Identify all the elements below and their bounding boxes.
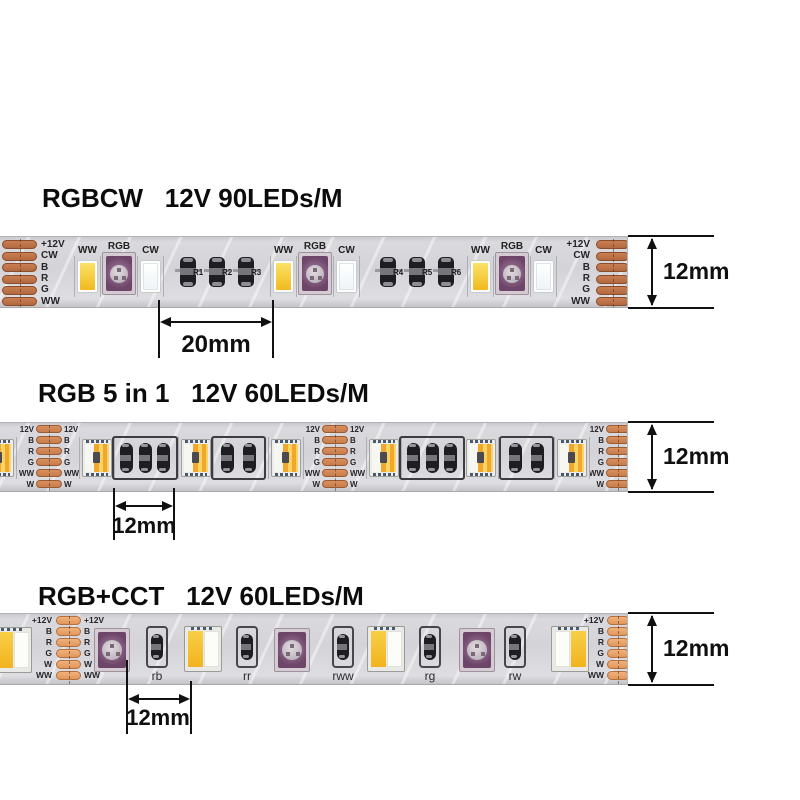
- width-dimension-label: 12mm: [663, 443, 729, 470]
- led-pins: [1, 628, 25, 631]
- rgbww-5in1-led: [82, 439, 112, 477]
- led-pins: [373, 440, 395, 443]
- section-title-rgbcct: RGB+CCT 12V 60LEDs/M: [38, 581, 364, 612]
- extension-line: [628, 421, 714, 423]
- resistor-cap: [153, 655, 159, 658]
- led-strip-product-diagram: RGBCW 12V 90LEDs/M +12VCWBRGWW+12VCWBRGW…: [0, 0, 800, 800]
- resistor-band: [120, 455, 131, 461]
- pad-label: B: [28, 627, 52, 637]
- resistor-cap: [159, 444, 166, 447]
- led-chip: [192, 452, 199, 463]
- rgb-chip: [122, 276, 126, 280]
- solder-pad-line: [333, 256, 334, 297]
- led-pins: [470, 440, 492, 443]
- solder-pad-line: [268, 437, 269, 479]
- pad-cut-line: [20, 239, 21, 307]
- led-pins: [470, 473, 492, 476]
- solder-pad-line: [589, 437, 590, 479]
- resistor-band: [509, 644, 519, 650]
- resistor-cap: [428, 444, 435, 447]
- resistor-label: R2: [222, 268, 232, 277]
- resistor-cap: [428, 468, 435, 471]
- solder-pad-line: [467, 256, 468, 297]
- resistor-cap: [383, 258, 393, 262]
- pad-label: G: [574, 649, 604, 659]
- resistor-cap: [426, 635, 432, 638]
- pad-label: G: [28, 649, 52, 659]
- rgb-chip: [515, 276, 519, 280]
- rgb-chip: [296, 652, 300, 656]
- ww-led: [470, 260, 491, 293]
- arrowhead-down-icon: [647, 479, 657, 490]
- solder-pad-line: [366, 437, 367, 479]
- resistor: [120, 443, 133, 473]
- pad-label: WW: [28, 671, 52, 681]
- rgb-chip: [475, 644, 479, 648]
- width-dimension-label: 12mm: [663, 635, 729, 662]
- resistor: [139, 443, 152, 473]
- pad-label: G: [16, 458, 34, 467]
- solder-pad-line: [178, 437, 179, 479]
- pad-cut-line: [335, 425, 336, 491]
- rgb-led: [298, 252, 332, 295]
- resistor-group-box: [399, 436, 465, 480]
- resistor-band: [139, 455, 150, 461]
- pad-label: +12V: [84, 616, 108, 626]
- solder-pad-line: [74, 256, 75, 297]
- resistor-cap: [441, 282, 451, 286]
- arrowhead-up-icon: [647, 424, 657, 435]
- resistor-cap: [141, 444, 148, 447]
- resistor-cap: [159, 468, 166, 471]
- resistor: [426, 443, 439, 473]
- resistor-band: [151, 644, 161, 650]
- resistor-group-box: [112, 436, 178, 480]
- resistor-cap: [511, 444, 518, 447]
- solder-pad-line: [100, 256, 101, 297]
- resistor: [509, 634, 521, 660]
- rgbww-5in1-led: [466, 439, 496, 477]
- rgb-chip: [117, 268, 121, 272]
- resistor-cap: [441, 258, 451, 262]
- copper-pad: [606, 447, 628, 455]
- resistor-cap: [446, 468, 453, 471]
- led-strip-rgbcw: +12VCWBRGWW+12VCWBRGWWWWRGBCWWWRGBCWWWRG…: [0, 236, 628, 308]
- extension-line: [628, 235, 714, 237]
- solder-pad-line: [296, 256, 297, 297]
- pad-label: B: [41, 262, 71, 273]
- pad-cut-line: [618, 616, 619, 684]
- rgb-led-dome: [306, 265, 324, 283]
- rgb-chip: [116, 652, 120, 656]
- extension-line: [628, 491, 714, 493]
- pad-label: WW: [41, 296, 71, 307]
- led-chip: [477, 452, 484, 463]
- solder-pad-line: [530, 256, 531, 297]
- resistor-group-box: [211, 436, 266, 480]
- rgb-led: [274, 628, 310, 672]
- solder-pad-line: [556, 256, 557, 297]
- pad-label: 12V: [64, 425, 82, 434]
- led-pins: [191, 627, 215, 630]
- resistor: [337, 634, 349, 660]
- resistor-cap: [183, 258, 193, 262]
- led-pins: [275, 473, 297, 476]
- resistor-band: [509, 455, 520, 461]
- pad-label: WW: [538, 296, 590, 307]
- rgb-led-dome: [467, 640, 487, 660]
- rgb-chip: [507, 276, 511, 280]
- arrowhead-left-icon: [128, 694, 139, 704]
- pad-label: WW: [16, 469, 34, 478]
- arrow-line: [163, 321, 269, 323]
- resistor-cap: [409, 444, 416, 447]
- arrowhead-up-icon: [647, 238, 657, 249]
- solder-pad-line: [554, 437, 555, 479]
- led-pins: [86, 473, 108, 476]
- resistor-cap: [383, 282, 393, 286]
- resistor-cap: [141, 468, 148, 471]
- resistor-cap: [412, 282, 422, 286]
- pad-label: R: [302, 447, 320, 456]
- led-pins: [185, 440, 207, 443]
- resistor-cap: [409, 468, 416, 471]
- copper-pad: [606, 458, 628, 466]
- resistor-band: [444, 455, 455, 461]
- pad-label: W: [576, 480, 604, 489]
- resistor-cap: [223, 468, 230, 471]
- ww-led: [273, 260, 294, 293]
- rgb-chip: [510, 268, 514, 272]
- rgb-led: [102, 252, 136, 295]
- resistor: [509, 443, 522, 473]
- section-title-rgb5in1: RGB 5 in 1 12V 60LEDs/M: [38, 378, 369, 409]
- ww-led-emitter: [80, 263, 95, 290]
- rgb-led-dome: [102, 640, 122, 660]
- resistor-group-box: [499, 436, 554, 480]
- resistor-label: R1: [193, 268, 203, 277]
- rgb-chip: [310, 276, 314, 280]
- rgb-chip: [110, 644, 114, 648]
- led-label: CW: [140, 245, 161, 256]
- cw-led-emitter: [339, 263, 354, 290]
- extension-line: [628, 612, 714, 614]
- resistor-band: [337, 644, 347, 650]
- resistor: [531, 443, 544, 473]
- resistor: [151, 634, 163, 660]
- cw-led: [140, 260, 161, 293]
- pad-label: W: [302, 480, 320, 489]
- resistor-label: R4: [393, 268, 403, 277]
- led-label: RGB: [495, 241, 529, 252]
- resistor-cap: [212, 282, 222, 286]
- pad-label: CW: [41, 250, 71, 261]
- resistor-outline-box: [332, 626, 354, 668]
- resistor-band: [241, 644, 251, 650]
- led-pins: [374, 627, 398, 630]
- resistor: [407, 443, 420, 473]
- resistor-cap: [153, 635, 159, 638]
- pad-label: R: [28, 638, 52, 648]
- solder-pad-line: [303, 437, 304, 479]
- resistor-cap: [245, 444, 252, 447]
- rgb-led-dome: [110, 265, 128, 283]
- resistor-cap: [426, 655, 432, 658]
- ww-led-emitter: [473, 263, 488, 290]
- width-dimension-label: 12mm: [663, 258, 729, 285]
- pad-cut-line: [69, 616, 70, 684]
- cct-half-white: [555, 631, 570, 667]
- resistor-band: [407, 455, 418, 461]
- solder-pad-line: [493, 256, 494, 297]
- led-pins: [561, 473, 583, 476]
- pad-label: 12V: [302, 425, 320, 434]
- resistor-cap: [241, 282, 251, 286]
- pad-cut-line: [618, 425, 619, 491]
- pad-label: 12V: [350, 425, 368, 434]
- section-title-rgbcw: RGBCW 12V 90LEDs/M: [42, 183, 343, 214]
- pad-label: WW: [574, 671, 604, 681]
- led-pins: [185, 473, 207, 476]
- resistor-cap: [339, 635, 345, 638]
- resistor-cap: [183, 282, 193, 286]
- resistor-outline-box: [419, 626, 441, 668]
- pad-label: W: [574, 660, 604, 670]
- rgb-led: [495, 252, 529, 295]
- pad-label: W: [64, 480, 82, 489]
- resistor-band: [243, 455, 254, 461]
- solder-pad-line: [79, 437, 80, 479]
- cct-half-amber: [0, 632, 13, 668]
- resistor-outline-box: [236, 626, 258, 668]
- cct-half-amber: [371, 631, 386, 667]
- rgb-chip: [481, 652, 485, 656]
- solder-pad-line: [270, 256, 271, 297]
- arrowhead-left-icon: [115, 501, 126, 511]
- rgb-chip: [290, 644, 294, 648]
- pitch-dimension-label: 12mm: [111, 705, 205, 731]
- arrowhead-down-icon: [647, 295, 657, 306]
- rgb-chip: [318, 276, 322, 280]
- rgbww-5in1-led: [271, 439, 301, 477]
- rgbww-5in1-led: [181, 439, 211, 477]
- pad-label: B: [574, 627, 604, 637]
- resistor-cap: [412, 258, 422, 262]
- resistor-outline-box: [146, 626, 168, 668]
- resistor-label: R3: [251, 268, 261, 277]
- led-pins: [275, 440, 297, 443]
- ww-led: [77, 260, 98, 293]
- cct-half-amber: [188, 631, 203, 667]
- led-pins: [0, 473, 10, 476]
- pad-label: R: [41, 273, 71, 284]
- resistor: [157, 443, 170, 473]
- resistor-cap: [122, 444, 129, 447]
- resistor: [243, 443, 256, 473]
- led-chip: [568, 452, 575, 463]
- pad-label: W: [16, 480, 34, 489]
- cct-half-white: [14, 632, 29, 668]
- resistor-cap: [533, 444, 540, 447]
- rgb-chip: [313, 268, 317, 272]
- rgbww-5in1-led: [369, 439, 399, 477]
- pad-label: +12V: [574, 616, 604, 626]
- resistor-cap: [241, 258, 251, 262]
- cw-led-emitter: [143, 263, 158, 290]
- resistor-label: rww: [324, 669, 362, 683]
- cw-led-emitter: [536, 263, 551, 290]
- resistor-cap: [511, 468, 518, 471]
- resistor-cap: [122, 468, 129, 471]
- led-strip-rgb5in1: 12VBRGWWW12VBRGWWW12VBRGWWW12VBRGWWW12VB…: [0, 422, 628, 492]
- rgb-led-dome: [503, 265, 521, 283]
- pad-label: 12V: [16, 425, 34, 434]
- resistor-label: rg: [411, 669, 449, 683]
- rgb-led: [94, 628, 130, 672]
- pad-label: +12V: [28, 616, 52, 626]
- cw-led: [533, 260, 554, 293]
- solder-pad-line: [137, 256, 138, 297]
- resistor-label: rw: [496, 669, 534, 683]
- pitch-dimension-label: 20mm: [158, 331, 274, 359]
- led-label: WW: [75, 245, 100, 256]
- led-label: WW: [271, 245, 296, 256]
- led-chip: [282, 452, 289, 463]
- led-pins: [86, 440, 108, 443]
- copper-pad: [606, 425, 628, 433]
- ww-led-emitter: [276, 263, 291, 290]
- resistor-label: R6: [451, 268, 461, 277]
- resistor-band: [157, 455, 168, 461]
- resistor-band: [531, 455, 542, 461]
- led-label: WW: [468, 245, 493, 256]
- copper-pad: [606, 436, 628, 444]
- pad-cut-line: [613, 239, 614, 307]
- led-label: CW: [336, 245, 357, 256]
- resistor-band: [424, 644, 434, 650]
- resistor-cap: [446, 444, 453, 447]
- arrowhead-right-icon: [261, 317, 272, 327]
- cct-half-white: [387, 631, 402, 667]
- resistor-label: R5: [422, 268, 432, 277]
- led-label: CW: [533, 245, 554, 256]
- led-pins: [0, 440, 10, 443]
- arrowhead-right-icon: [179, 694, 190, 704]
- rgb-chip: [286, 652, 290, 656]
- pad-label: G: [41, 284, 71, 295]
- copper-pad: [606, 480, 628, 488]
- cw-led: [336, 260, 357, 293]
- resistor: [424, 634, 436, 660]
- rgbww-5in1-led: [0, 439, 14, 477]
- pad-cut-line: [49, 425, 50, 491]
- pad-label: W: [350, 480, 368, 489]
- pad-label: R: [16, 447, 34, 456]
- led-chip: [0, 452, 2, 463]
- resistor-cap: [243, 635, 249, 638]
- arrowhead-down-icon: [647, 672, 657, 683]
- rgbww-5in1-led: [557, 439, 587, 477]
- resistor-band: [426, 455, 437, 461]
- rgb-chip: [471, 652, 475, 656]
- arrowhead-left-icon: [160, 317, 171, 327]
- resistor-cap: [533, 468, 540, 471]
- pad-label: 12V: [576, 425, 604, 434]
- resistor: [444, 443, 457, 473]
- rgb-chip: [106, 652, 110, 656]
- led-label: RGB: [298, 241, 332, 252]
- led-chip: [380, 452, 387, 463]
- pad-label: B: [16, 436, 34, 445]
- pad-label: B: [302, 436, 320, 445]
- arrowhead-up-icon: [647, 615, 657, 626]
- rgb-chip: [114, 276, 118, 280]
- resistor-cap: [245, 468, 252, 471]
- cct-led: [184, 626, 222, 672]
- led-chip: [93, 452, 100, 463]
- pad-label: +12V: [41, 239, 71, 250]
- resistor-cap: [511, 655, 517, 658]
- resistor-label: rr: [228, 669, 266, 683]
- pad-label: W: [28, 660, 52, 670]
- resistor-cap: [243, 655, 249, 658]
- pitch-dimension-label: 12mm: [98, 513, 190, 539]
- rgb-led-dome: [282, 640, 302, 660]
- pad-label: R: [574, 638, 604, 648]
- pad-label: G: [302, 458, 320, 467]
- extension-line: [628, 307, 714, 309]
- cct-half-white: [204, 631, 219, 667]
- rgb-led: [459, 628, 495, 672]
- copper-pad: [606, 469, 628, 477]
- solder-pad-line: [359, 256, 360, 297]
- arrowhead-right-icon: [162, 501, 173, 511]
- resistor-outline-box: [504, 626, 526, 668]
- led-pins: [373, 473, 395, 476]
- solder-pad-line: [163, 256, 164, 297]
- pad-label: WW: [302, 469, 320, 478]
- pad-label: WW: [84, 671, 108, 681]
- extension-line: [628, 684, 714, 686]
- resistor-cap: [212, 258, 222, 262]
- led-pins: [561, 440, 583, 443]
- resistor-cap: [511, 635, 517, 638]
- resistor-label: rb: [138, 669, 176, 683]
- resistor-cap: [223, 444, 230, 447]
- resistor-cap: [339, 655, 345, 658]
- resistor-band: [221, 455, 232, 461]
- resistor: [241, 634, 253, 660]
- resistor: [221, 443, 234, 473]
- led-label: RGB: [102, 241, 136, 252]
- led-strip-rgbcct: +12VBRGWWW+12VBRGWWWrbrrrwwrgrw+12VBRGWW…: [0, 613, 628, 685]
- cct-led: [367, 626, 405, 672]
